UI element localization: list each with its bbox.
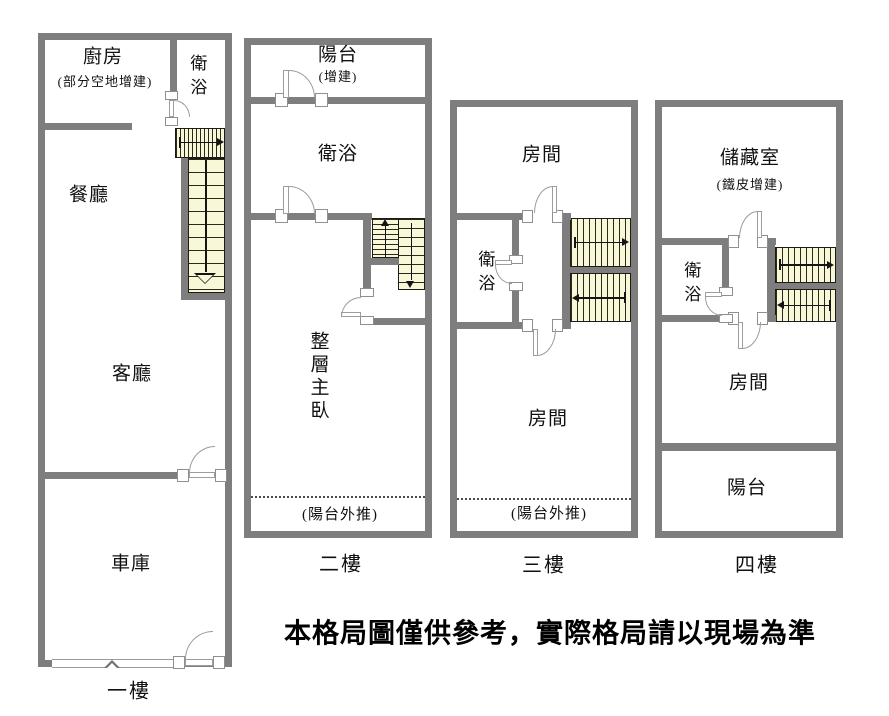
room-label-bottom: 房間: [528, 410, 568, 431]
room-note-storage: (鐵皮增建): [717, 178, 784, 192]
floor-plan-level-3: 房間 衛浴 房間 (陽台外推): [450, 100, 638, 538]
stair-direction-line: [574, 242, 624, 244]
wall-living-garage: [45, 472, 178, 479]
stair-direction-line: [779, 264, 829, 266]
wall-bath-bottom: [457, 322, 522, 329]
floor-plan-level-4: 儲藏室 (鐵皮增建) 衛浴 房間 陽台: [655, 100, 843, 538]
door-arc-icon: [742, 322, 761, 349]
room-label-bath: 衛浴: [681, 261, 700, 309]
door-jamb: [360, 288, 374, 297]
wall-stair-hall: [562, 213, 570, 329]
door-jamb: [165, 91, 178, 100]
stair-arrow-left-icon: [777, 301, 784, 309]
wall-stair-hall: [767, 238, 775, 322]
door-jamb: [728, 235, 739, 248]
door-jamb: [165, 117, 178, 126]
stair-open-arrow-down-inner: [197, 275, 213, 283]
floor-caption-1: 一樓: [107, 675, 151, 704]
wall-stair-hall: [363, 213, 371, 288]
door-arc-icon: [341, 297, 361, 317]
door-jamb: [315, 209, 328, 223]
door-jamb: [315, 93, 328, 107]
door-arc-icon: [705, 297, 722, 316]
stair-arrow-right-icon: [622, 238, 629, 246]
stair-direction-line: [781, 305, 831, 307]
floor-plan-canvas: 廚房 (部分空地增建) 衛浴 餐廳 客廳 車庫: [0, 0, 889, 716]
disclaimer-text: 本格局圖僅供參考，實際格局請以現場為準: [284, 612, 816, 651]
stair-direction-line: [576, 297, 626, 299]
stair-line-tail: [829, 300, 831, 311]
room-label-garage: 車庫: [111, 555, 151, 576]
floor-caption-3: 三樓: [522, 549, 566, 578]
room-label-master: 整層主臥: [307, 331, 328, 423]
door-arc-icon: [289, 186, 315, 214]
door-jamb: [213, 656, 225, 669]
stair-line-tail: [574, 237, 576, 248]
door-arc-icon: [174, 100, 190, 117]
room-note-balcony-push: (陽台外推): [302, 507, 378, 524]
room-note-balcony-push: (陽台外推): [511, 506, 587, 523]
floor-plan-level-2: 陽台 (增建) 衛浴 整層主臥 (陽台外推): [244, 38, 432, 538]
stair-arrow-up-icon: [381, 219, 389, 226]
room-label-dining: 餐廳: [69, 186, 109, 207]
stair-direction-line: [411, 223, 413, 280]
room-note-kitchen: (部分空地增建): [58, 75, 153, 89]
stair-direction-line: [205, 160, 207, 272]
wall-bath-divider: [722, 245, 729, 287]
stair-direction-line: [179, 142, 220, 144]
stair-line-tail: [179, 137, 181, 148]
door-jamb: [215, 469, 227, 482]
door-arc-icon: [189, 446, 215, 473]
room-label-bath: 衛浴: [475, 250, 494, 298]
stair-line-tail: [624, 292, 626, 303]
room-label-bath: 衛浴: [318, 145, 358, 166]
wall-bath-bottom: [251, 213, 372, 220]
door-arc-icon: [185, 631, 213, 659]
door-jamb: [173, 656, 185, 669]
wall-storage-bottom-left: [662, 238, 728, 245]
wall-room-balcony: [662, 443, 836, 451]
room-label-balcony: 陽台: [318, 46, 358, 67]
door-leaf: [185, 659, 213, 666]
wall-kitchen-bottom: [45, 123, 132, 130]
stair-arrow-left-icon: [572, 294, 579, 302]
stair-line-tail: [779, 259, 781, 270]
door-jamb: [360, 316, 374, 325]
door-jamb: [177, 469, 189, 482]
room-label-kitchen: 廚房: [83, 48, 123, 69]
door-arc-icon: [495, 265, 512, 284]
room-label-balcony: 陽台: [727, 479, 767, 500]
balcony-push-line: [457, 498, 631, 500]
door-jamb: [522, 210, 533, 223]
wall-hall-top-left: [457, 213, 523, 220]
wall-bath-divider-lower: [512, 291, 519, 323]
door-arc-icon: [289, 70, 315, 98]
floor-caption-4: 四樓: [735, 549, 779, 578]
stair-arrow-down-icon: [406, 281, 414, 288]
wall-bath-divider: [170, 40, 177, 91]
room-note-balcony: (增建): [319, 70, 358, 84]
garage-marker-inner: [107, 663, 117, 668]
room-label-bath: 衛浴: [187, 54, 206, 102]
room-label-room: 房間: [729, 374, 769, 395]
floor-plan-level-1: 廚房 (部分空地增建) 衛浴 餐廳 客廳 車庫: [38, 33, 232, 667]
wall-stair-bottom: [181, 293, 225, 300]
room-label-storage: 儲藏室: [720, 149, 780, 170]
floor-caption-2: 二樓: [319, 548, 363, 577]
stair-direction-line: [385, 225, 387, 257]
wall-stair-left: [181, 158, 188, 300]
balcony-push-line: [251, 496, 425, 498]
door-jamb: [522, 319, 533, 332]
door-arc-icon: [534, 186, 553, 213]
room-label-living: 客廳: [112, 365, 152, 386]
room-label-top: 房間: [522, 146, 562, 167]
wall-bath-divider-upper: [512, 220, 519, 256]
stair-arrow-right-icon: [217, 138, 224, 146]
stair-arrow-right-icon: [827, 261, 834, 269]
door-arc-icon: [537, 329, 556, 356]
door-arc-icon: [739, 211, 758, 238]
